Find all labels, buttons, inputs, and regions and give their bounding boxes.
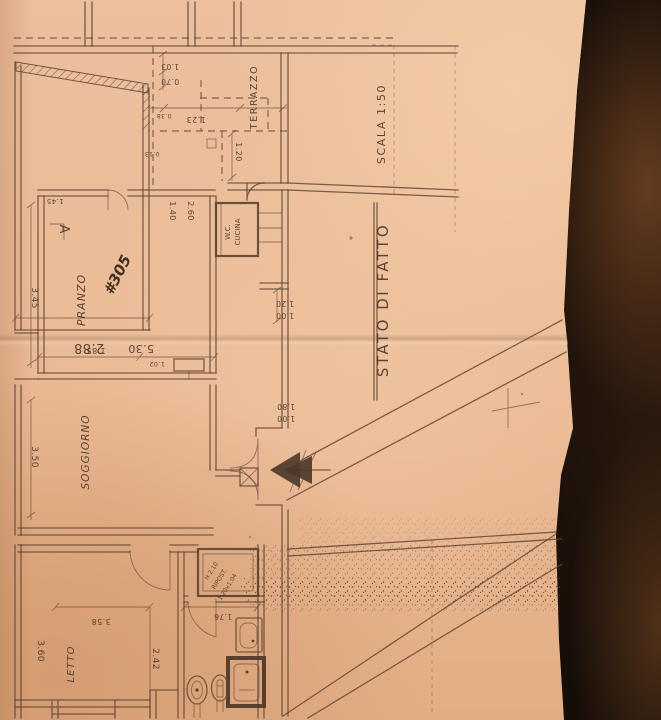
- dim-3-50: 3.50: [29, 446, 39, 468]
- room-label-soggiorno: SOGGIORNO: [80, 415, 92, 490]
- scale-label: SCALA 1:50: [375, 84, 388, 164]
- dim-1-76: 1.76: [214, 612, 232, 621]
- dim-0-70: 0.70: [161, 77, 179, 86]
- unit-number: #305: [100, 252, 135, 297]
- dim-1-23: 1.23: [186, 115, 205, 124]
- soggiorno-walls: [15, 385, 216, 535]
- room-label-cucina: CUCINA: [234, 218, 242, 245]
- kitchen-hall-walls: [216, 190, 288, 549]
- dim-2-60: 2.60: [186, 201, 195, 220]
- dim-1-40: 1.40: [168, 201, 177, 220]
- dim-1-03: 1.03: [161, 62, 179, 71]
- dim-1-45: 1.45: [46, 197, 63, 205]
- letto-walls: [15, 545, 198, 718]
- dim-1-80: 1.80: [277, 402, 295, 411]
- dim-1-85: 1.85: [86, 346, 105, 355]
- section-marker-a: A: [56, 225, 71, 234]
- room-label-pranzo: PRANZO: [75, 274, 88, 326]
- bidet: [212, 675, 229, 712]
- dim-3-58: 3.58: [91, 617, 110, 626]
- room-label-wc: W.C.: [224, 224, 232, 239]
- dim-0-13: 0.13: [145, 150, 160, 157]
- dim-1-00-hall: 1.00: [276, 311, 294, 320]
- dim-1-02: 1.02: [149, 360, 165, 368]
- bathroom-fixtures: [187, 618, 264, 718]
- dim-1-20-terrace: 1.20: [234, 142, 243, 161]
- room-label-letto: LETTO: [66, 646, 77, 683]
- site-lines: [282, 45, 566, 718]
- dim-2-42: 2.42: [150, 648, 160, 670]
- photo-of-floor-plan: STATO DI FATTO SCALA 1:50 TERRAZZO PRANZ…: [0, 0, 661, 720]
- dim-0-38: 0.38: [157, 112, 172, 119]
- toilet: [187, 676, 207, 718]
- dim-3-45: 3.45: [29, 287, 39, 309]
- title-texts: STATO DI FATTO SCALA 1:50: [374, 84, 392, 377]
- dim-1-00-entry: 1.00: [277, 414, 295, 423]
- dim-1-20-hall: 1.20: [276, 299, 294, 308]
- plan-title: STATO DI FATTO: [374, 223, 392, 377]
- room-label-terrazzo: TERRAZZO: [249, 65, 260, 130]
- dim-3-60: 3.60: [35, 640, 45, 662]
- floor-plan-drawing: STATO DI FATTO SCALA 1:50 TERRAZZO PRANZ…: [0, 0, 661, 720]
- dim-5-30: 5.30: [128, 342, 154, 355]
- entrance-arrow: [270, 450, 330, 492]
